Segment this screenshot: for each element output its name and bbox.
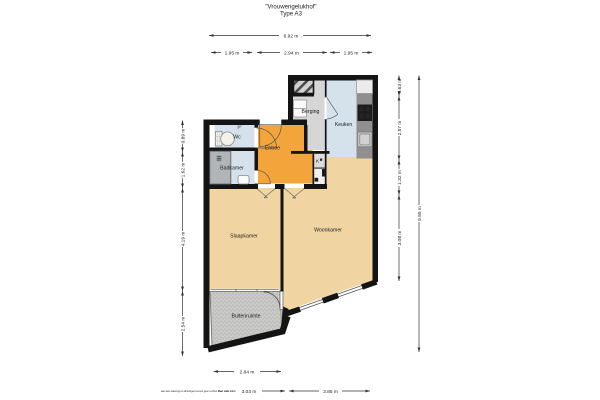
svg-text:Entree: Entree	[265, 146, 280, 152]
svg-text:1.95 m: 1.95 m	[344, 51, 359, 57]
svg-text:2.84 m: 2.84 m	[240, 370, 255, 376]
svg-text:4.19 m: 4.19 m	[181, 232, 187, 247]
svg-text:1.62 m: 1.62 m	[181, 163, 187, 178]
svg-text:"Vrouwengelukhof": "Vrouwengelukhof"	[265, 4, 316, 11]
svg-text:0.89 m: 0.89 m	[181, 129, 187, 144]
svg-text:Woonkamer: Woonkamer	[314, 228, 342, 234]
svg-text:Berging: Berging	[302, 109, 320, 115]
svg-text:6.92 m: 6.92 m	[284, 34, 299, 40]
svg-text:3.08 m: 3.08 m	[397, 231, 403, 246]
svg-text:Buitenruimte: Buitenruimte	[231, 314, 260, 320]
svg-text:3.03 m: 3.03 m	[242, 389, 257, 395]
svg-text:0.63 m: 0.63 m	[397, 79, 403, 94]
svg-text:Slaapkamer: Slaapkamer	[230, 234, 258, 240]
svg-text:2.54 m: 2.54 m	[181, 317, 187, 332]
svg-text:2.57 m: 2.57 m	[397, 121, 403, 136]
svg-text:Badkamer: Badkamer	[220, 166, 244, 172]
svg-text:aan deze tekening en afmetinge: aan deze tekening en afmetingen kunnen g…	[161, 390, 235, 393]
svg-text:Wc: Wc	[233, 135, 241, 141]
svg-text:Keuken: Keuken	[335, 122, 353, 128]
svg-text:3.85 m: 3.85 m	[323, 389, 338, 395]
svg-text:2.94 m: 2.94 m	[284, 51, 299, 57]
svg-text:9.95 m: 9.95 m	[417, 206, 423, 221]
svg-text:1.95 m: 1.95 m	[225, 51, 240, 57]
svg-text:Type A3: Type A3	[280, 11, 303, 18]
svg-text:1.32 m: 1.32 m	[397, 170, 403, 185]
